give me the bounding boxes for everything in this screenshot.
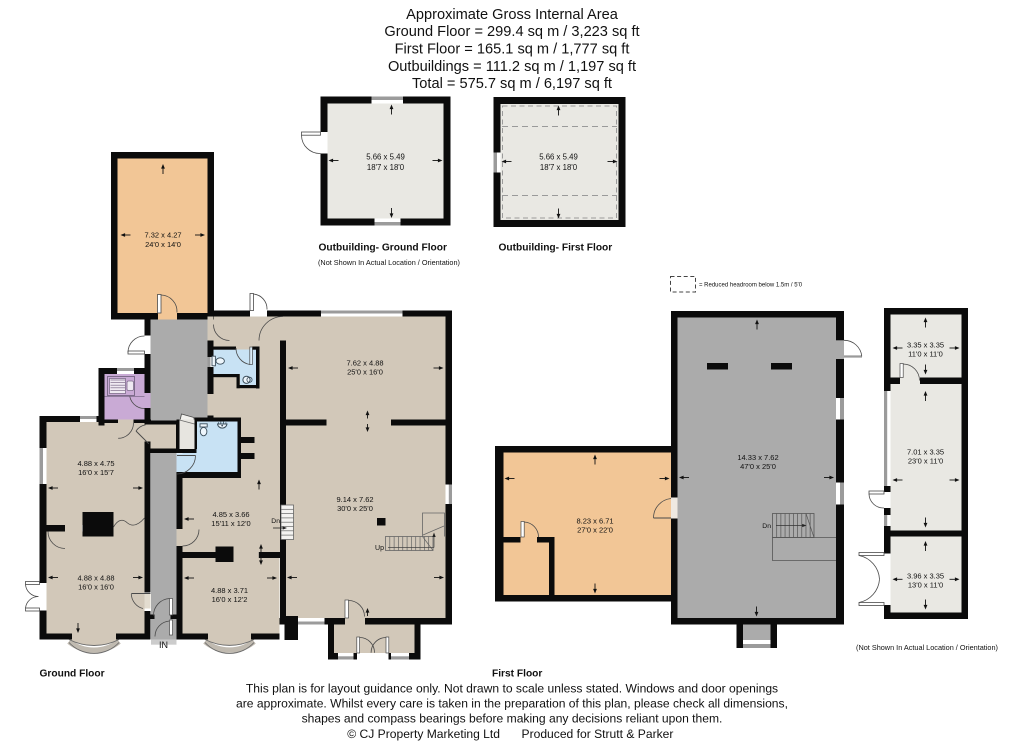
svg-text:30'0 x 25'0: 30'0 x 25'0: [337, 504, 373, 513]
svg-text:18'7 x 18'0: 18'7 x 18'0: [367, 163, 405, 172]
svg-text:15'11 x 12'0: 15'11 x 12'0: [211, 519, 250, 528]
svg-text:Outbuildings = 111.2 sq m / 1,: Outbuildings = 111.2 sq m / 1,197 sq ft: [388, 59, 636, 75]
svg-text:shapes and compass bearings be: shapes and compass bearings before makin…: [302, 711, 723, 725]
svg-text:47'0 x 25'0: 47'0 x 25'0: [740, 462, 776, 471]
svg-text:Total = 575.7 sq m / 6,197 sq: Total = 575.7 sq m / 6,197 sq ft: [412, 76, 612, 92]
svg-text:Dn: Dn: [271, 518, 280, 525]
svg-text:5.66 x 5.49: 5.66 x 5.49: [539, 153, 578, 162]
svg-text:Dn: Dn: [762, 523, 771, 530]
svg-text:18'7 x 18'0: 18'7 x 18'0: [540, 163, 578, 172]
svg-text:16'0 x 12'2: 16'0 x 12'2: [212, 595, 248, 604]
svg-text:4.85 x 3.66: 4.85 x 3.66: [212, 510, 249, 519]
svg-text:First Floor: First Floor: [492, 668, 542, 679]
svg-text:Ground Floor = 299.4 sq m / 3,: Ground Floor = 299.4 sq m / 3,223 sq ft: [384, 24, 639, 40]
svg-text:(Not Shown In Actual Location: (Not Shown In Actual Location / Orientat…: [318, 258, 460, 267]
svg-text:© CJ Property Marketing Ltd: © CJ Property Marketing Ltd: [347, 727, 500, 741]
svg-text:3.35 x 3.35: 3.35 x 3.35: [907, 340, 944, 349]
svg-text:23'0 x 11'0: 23'0 x 11'0: [908, 457, 943, 466]
svg-text:13'0 x 11'0: 13'0 x 11'0: [908, 581, 943, 590]
svg-text:16'0 x 15'7: 16'0 x 15'7: [78, 468, 114, 477]
svg-text:First Floor = 165.1 sq m / 1,7: First Floor = 165.1 sq m / 1,777 sq ft: [395, 42, 630, 58]
svg-text:14.33 x 7.62: 14.33 x 7.62: [737, 453, 778, 462]
svg-text:4.88 x 3.71: 4.88 x 3.71: [211, 586, 248, 595]
svg-text:25'0 x 16'0: 25'0 x 16'0: [347, 368, 383, 377]
svg-text:(Not Shown In Actual Location: (Not Shown In Actual Location / Orientat…: [856, 643, 998, 652]
svg-text:3.96 x 3.35: 3.96 x 3.35: [907, 571, 944, 580]
svg-text:Outbuilding- Ground Floor: Outbuilding- Ground Floor: [319, 243, 447, 254]
svg-text:IN: IN: [159, 640, 168, 650]
svg-text:7.01 x 3.35: 7.01 x 3.35: [907, 447, 944, 456]
svg-text:27'0 x 22'0: 27'0 x 22'0: [577, 526, 613, 535]
svg-text:are approximate. Whilst every: are approximate. Whilst every care is ta…: [236, 696, 788, 710]
svg-text:5.66 x 5.49: 5.66 x 5.49: [366, 153, 405, 162]
svg-text:16'0 x 16'0: 16'0 x 16'0: [78, 583, 114, 592]
svg-text:7.62 x 4.88: 7.62 x 4.88: [346, 358, 383, 367]
svg-text:Approximate Gross Internal Are: Approximate Gross Internal Area: [406, 7, 619, 23]
svg-text:8.23 x 6.71: 8.23 x 6.71: [576, 516, 613, 525]
svg-text:Ground Floor: Ground Floor: [40, 668, 105, 679]
svg-text:9.14 x 7.62: 9.14 x 7.62: [336, 495, 373, 504]
svg-text:4.88 x 4.88: 4.88 x 4.88: [77, 573, 114, 582]
svg-text:This plan is for layout guidan: This plan is for layout guidance only. N…: [246, 681, 778, 695]
svg-text:7.32 x 4.27: 7.32 x 4.27: [144, 231, 181, 240]
svg-text:4.88 x 4.75: 4.88 x 4.75: [77, 459, 114, 468]
svg-text:Up: Up: [375, 545, 384, 552]
svg-text:11'0 x 11'0: 11'0 x 11'0: [908, 350, 943, 359]
svg-text:= Reduced headroom below 1.5m: = Reduced headroom below 1.5m / 5'0: [699, 283, 803, 289]
svg-text:24'0 x 14'0: 24'0 x 14'0: [145, 240, 181, 249]
svg-text:Outbuilding- First Floor: Outbuilding- First Floor: [499, 243, 613, 254]
svg-text:Produced for Strutt & Parker: Produced for Strutt & Parker: [522, 727, 674, 741]
